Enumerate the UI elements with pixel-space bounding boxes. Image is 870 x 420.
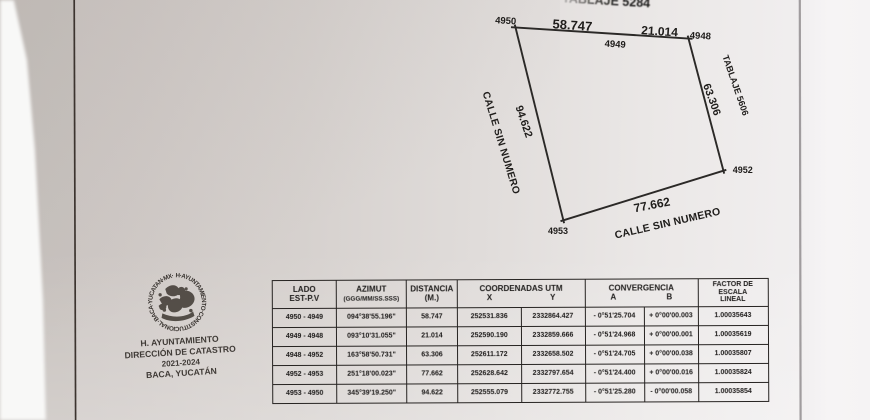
- svg-text:4953: 4953: [548, 226, 568, 236]
- svg-text:58.747: 58.747: [552, 16, 593, 34]
- svg-text:94.622: 94.622: [512, 104, 534, 139]
- svg-text:CALLE SIN NUMERO: CALLE SIN NUMERO: [614, 206, 722, 242]
- svg-text:TABLAJE 5606: TABLAJE 5606: [720, 54, 750, 117]
- svg-text:4949: 4949: [604, 39, 626, 51]
- svg-text:BACA, YUCATÁN: BACA, YUCATÁN: [146, 366, 217, 380]
- svg-text:TABLAJE 5284: TABLAJE 5284: [562, 0, 651, 10]
- svg-text:4950: 4950: [495, 15, 517, 27]
- svg-text:4948: 4948: [689, 30, 711, 42]
- svg-text:21.014: 21.014: [641, 23, 679, 39]
- svg-text:63.306: 63.306: [700, 82, 723, 117]
- svg-text:4952: 4952: [733, 165, 753, 175]
